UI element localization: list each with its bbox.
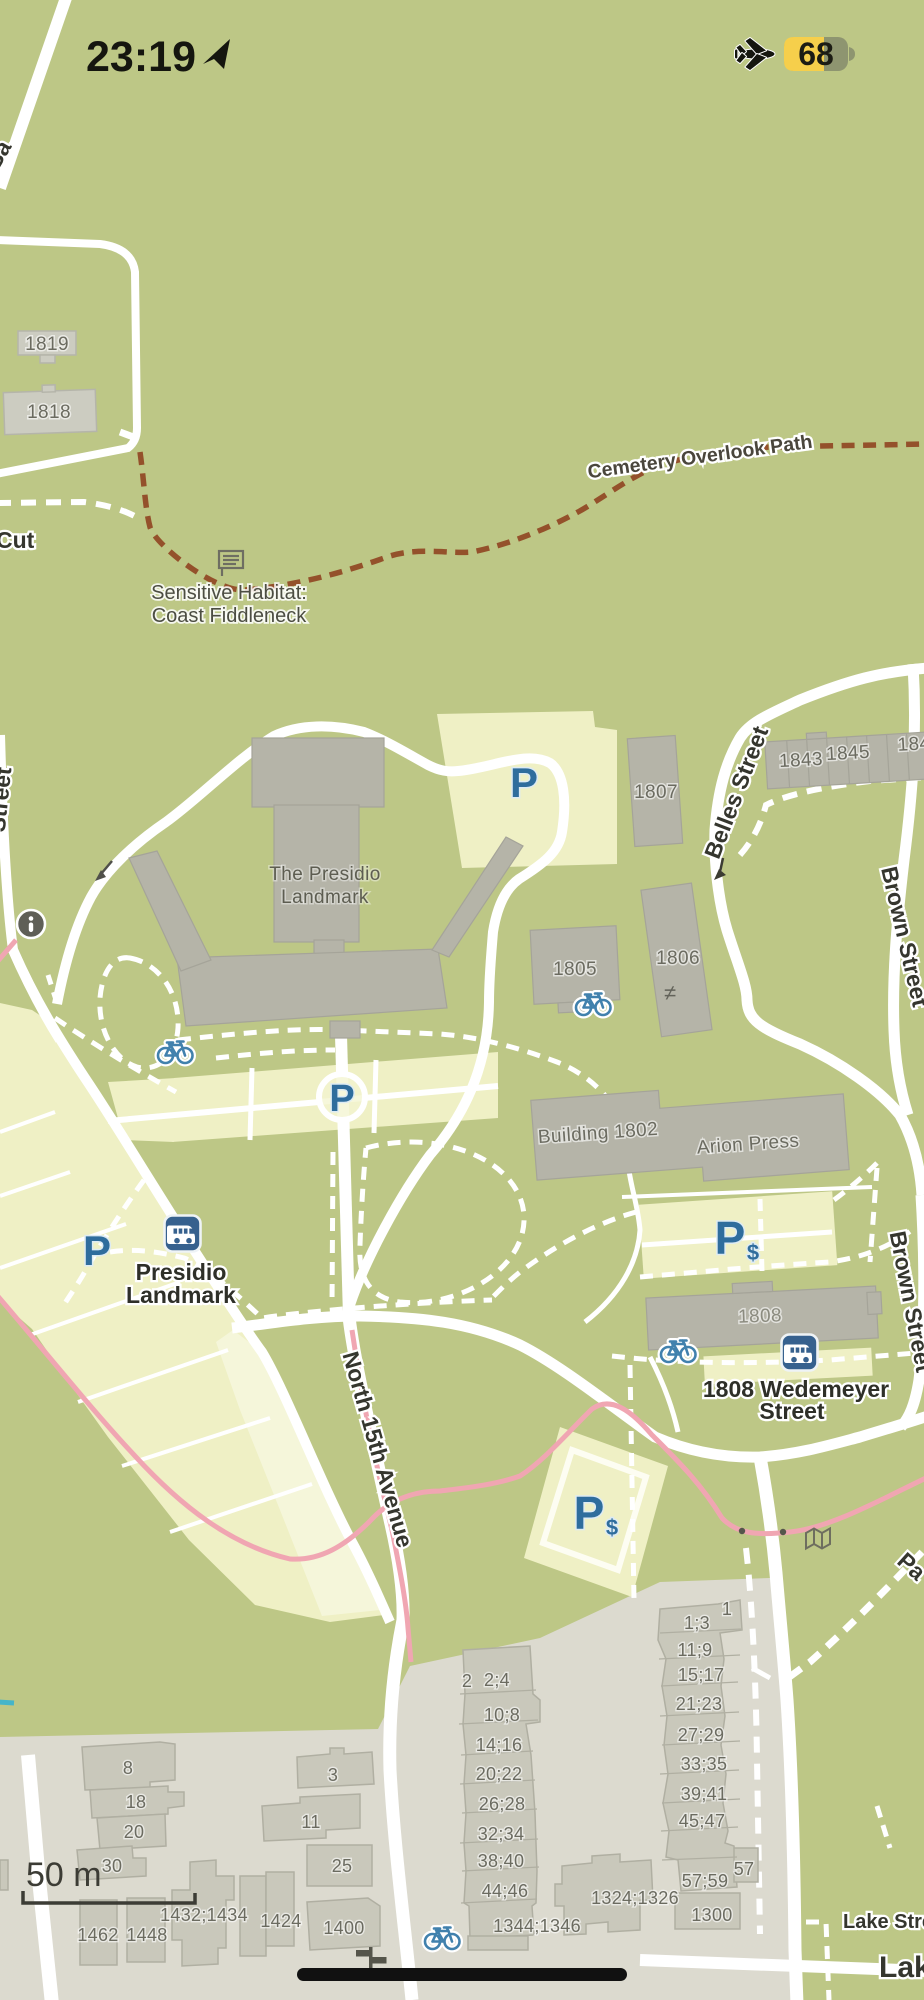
svg-text:18: 18	[126, 1792, 147, 1812]
svg-text:68: 68	[798, 36, 834, 72]
svg-text:21;23: 21;23	[676, 1694, 723, 1714]
svg-text:25: 25	[332, 1856, 353, 1876]
svg-text:1806: 1806	[656, 948, 700, 969]
svg-text:P: P	[510, 759, 538, 806]
svg-text:184: 184	[897, 733, 924, 756]
svg-text:1: 1	[722, 1599, 732, 1619]
svg-text:1818: 1818	[27, 402, 71, 423]
svg-text:P: P	[574, 1487, 605, 1539]
svg-text:30: 30	[102, 1856, 123, 1876]
svg-text:1324;1326: 1324;1326	[591, 1888, 679, 1908]
svg-text:Street: Street	[759, 1398, 825, 1424]
svg-text:Landmark: Landmark	[126, 1282, 236, 1308]
svg-text:Lake Stre: Lake Stre	[843, 1911, 924, 1933]
svg-text:26;28: 26;28	[479, 1794, 526, 1814]
svg-text:1448: 1448	[126, 1925, 167, 1945]
svg-text:P: P	[329, 1078, 354, 1120]
svg-text:1843: 1843	[779, 749, 824, 772]
svg-text:1808: 1808	[738, 1305, 783, 1328]
svg-text:$: $	[606, 1515, 618, 1540]
svg-text:2: 2	[462, 1671, 472, 1691]
svg-text:1845: 1845	[826, 742, 871, 765]
svg-text:39;41: 39;41	[681, 1784, 728, 1804]
svg-text:1424: 1424	[260, 1911, 301, 1931]
svg-text:1344;1346: 1344;1346	[493, 1916, 581, 1936]
svg-text:20: 20	[124, 1822, 145, 1842]
svg-text:1462: 1462	[77, 1925, 118, 1945]
svg-text:Coast Fiddleneck: Coast Fiddleneck	[152, 605, 308, 627]
svg-text:33;35: 33;35	[681, 1754, 728, 1774]
svg-text:1432;1434: 1432;1434	[160, 1905, 248, 1925]
svg-text:27;29: 27;29	[678, 1725, 725, 1745]
svg-text:57;59: 57;59	[682, 1871, 729, 1891]
svg-text:32;34: 32;34	[478, 1824, 525, 1844]
svg-text:1400: 1400	[323, 1918, 364, 1938]
svg-text:1300: 1300	[691, 1905, 732, 1925]
svg-text:Lak: Lak	[879, 1951, 924, 1984]
svg-text:The Presidio: The Presidio	[269, 864, 380, 885]
svg-text:≠: ≠	[664, 980, 676, 1005]
svg-text:11;9: 11;9	[678, 1640, 713, 1660]
svg-text:8: 8	[123, 1758, 133, 1778]
svg-text:50 m: 50 m	[26, 1856, 102, 1894]
svg-text:14;16: 14;16	[476, 1735, 523, 1755]
svg-text:Landmark: Landmark	[281, 887, 369, 908]
svg-text:44;46: 44;46	[482, 1881, 529, 1901]
svg-text:15;17: 15;17	[678, 1665, 725, 1685]
svg-text:23:19: 23:19	[86, 33, 196, 81]
svg-text:57: 57	[734, 1859, 755, 1879]
svg-text:1807: 1807	[634, 782, 678, 803]
svg-text:2;4: 2;4	[484, 1670, 510, 1690]
svg-text:$: $	[747, 1240, 759, 1265]
svg-text:11: 11	[301, 1812, 320, 1832]
svg-text:Sensitive Habitat:: Sensitive Habitat:	[151, 582, 307, 604]
svg-text:38;40: 38;40	[478, 1851, 525, 1871]
svg-text:Cut: Cut	[0, 527, 35, 553]
svg-text:3: 3	[328, 1765, 338, 1785]
svg-text:20;22: 20;22	[476, 1764, 523, 1784]
svg-text:1819: 1819	[25, 334, 69, 355]
svg-text:45;47: 45;47	[679, 1811, 726, 1831]
svg-text:P: P	[83, 1227, 111, 1274]
svg-text:P: P	[715, 1212, 746, 1264]
svg-text:1805: 1805	[553, 959, 597, 980]
svg-text:1;3: 1;3	[684, 1613, 710, 1633]
svg-text:10;8: 10;8	[484, 1705, 520, 1725]
